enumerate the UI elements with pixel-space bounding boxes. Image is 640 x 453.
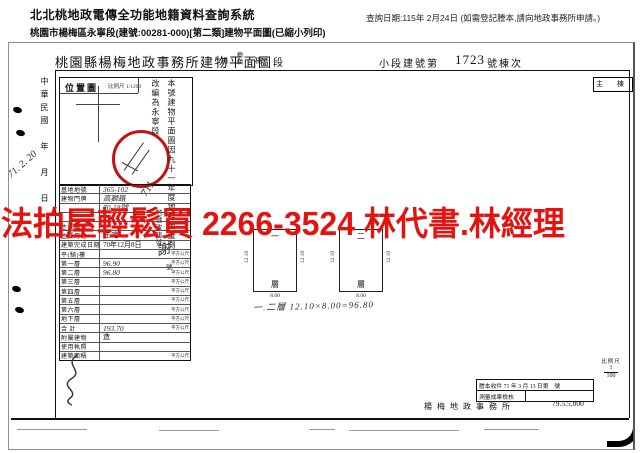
receipt-row-2-label: 測量成果檢核: [477, 391, 526, 401]
row-unit: 平方公尺: [171, 297, 190, 303]
table-row: 附屬建物造: [60, 333, 190, 342]
form-bottom-border: [11, 418, 629, 420]
map-sketch-line: [98, 86, 99, 142]
punch-mark: [15, 129, 25, 137]
row-value-cell: 平方公尺: [100, 251, 190, 257]
row-label: 使用執照: [60, 343, 100, 351]
punch-mark: [12, 106, 22, 114]
row-label: 附屬建物: [60, 333, 100, 341]
lot-label: 小段建號第: [379, 55, 439, 70]
row-label: 第一層: [60, 259, 100, 267]
row-value-cell: 96.80平方公尺: [100, 268, 190, 277]
floor-plan-1-dim-bottom: 8.00: [254, 293, 296, 299]
screenshot-root: 北北桃地政電傳全功能地籍資料查詢系統 查詢日期:115年 2月24日 (如需登記…: [0, 0, 640, 453]
table-row: 第四層平方公尺: [60, 287, 190, 296]
row-label: 第五層: [60, 296, 100, 304]
drawing-scale-denominator: 100: [597, 373, 625, 380]
table-row: 第一層96.90平方公尺: [60, 259, 190, 268]
section-char: 段: [273, 54, 283, 69]
admin-char-2: 梅鎮: [237, 53, 245, 66]
roc-date-label: 中華民國 年 月 日: [39, 77, 50, 282]
row-value: 96.80: [103, 268, 120, 277]
row-label: 合 計: [60, 324, 100, 332]
row-unit: 平方公尺: [171, 260, 190, 266]
renamed-note: 改編為永寧段: [150, 79, 161, 171]
row-value-cell: 平方公尺: [100, 353, 190, 359]
table-row: 第三層平方公尺: [60, 278, 190, 287]
row-value-cell: 96.90平方公尺: [100, 259, 190, 268]
lot-number: 1723: [455, 52, 485, 68]
lot-suffix: 號棟次: [487, 55, 523, 70]
table-row: 合 計193.70平方公尺: [60, 324, 190, 333]
admin-char-1: 楊: [221, 56, 228, 66]
floor-plan-1-dim-left: 12.10: [244, 251, 250, 263]
row-value-cell: 193.70平方公尺: [100, 324, 190, 333]
row-unit: 平方公尺: [171, 251, 190, 257]
admin-char-3: 楊: [255, 56, 262, 66]
table-row: 第六層平方公尺: [60, 305, 190, 314]
row-label: 地下層: [60, 315, 100, 323]
punch-mark: [14, 306, 24, 314]
map-header-rule: [60, 93, 138, 94]
row-unit: 平方公尺: [171, 307, 190, 313]
main-building-box: 主 棟: [593, 77, 633, 92]
row-value-cell: 平方公尺: [100, 288, 190, 294]
scan-corner-artifact: [607, 413, 635, 447]
table-row: 基地地號365-102: [60, 185, 190, 194]
drawing-scale-numerator: 1: [597, 365, 625, 372]
row-unit: 平方公尺: [171, 270, 190, 276]
receipt-row-1: 謄本收件 71 年 3 月 13 日第 號: [477, 380, 593, 391]
office-name: 楊梅地政事務所: [424, 401, 515, 412]
row-value-cell: 365-102: [100, 185, 190, 194]
scanned-document: 桃園縣楊梅地政事務所建物平面圖 楊 梅鎮 楊 段 小段建號第 1723 號棟次 …: [8, 42, 635, 450]
row-value-cell: 平方公尺: [100, 316, 190, 322]
row-unit: 平方公尺: [171, 288, 190, 294]
location-map-scale: 比例尺 1/1200: [108, 82, 141, 90]
row-label: 第四層: [60, 287, 100, 295]
table-row: 地下層平方公尺: [60, 315, 190, 324]
scan-artifact-line: [159, 430, 219, 431]
table-row: 使用執照: [60, 343, 190, 352]
row-unit: 平方公尺: [171, 325, 190, 331]
handwritten-date: 71. 2. 20: [8, 149, 39, 181]
row-value-cell: 平方公尺: [100, 307, 190, 313]
document-subtitle: 桃園市楊梅區永寧段(建號:00281-000)[第二類]建物平面圖(已縮小列印): [30, 25, 326, 39]
scan-artifact-line: [309, 429, 335, 430]
row-value: 造: [103, 333, 110, 342]
row-label: 平(騎)樓: [60, 250, 100, 258]
row-unit: 平方公尺: [171, 279, 190, 285]
floor-plan-1-dim-right: 12.10: [300, 251, 306, 263]
row-value: 96.90: [103, 259, 120, 268]
row-value-cell: 造: [100, 333, 190, 342]
handwritten-scribble: [61, 353, 91, 407]
red-watermark-text: 法拍屋輕鬆買 2266-3524 林代書.林經理: [1, 197, 622, 245]
row-unit: 平方公尺: [171, 353, 190, 359]
row-label: 基地地號: [60, 185, 100, 193]
punch-mark: [11, 285, 21, 293]
table-row: 第五層平方公尺: [60, 296, 190, 305]
floor-plan-2-dim-right: 12.10: [386, 251, 392, 263]
map-header-tick: [138, 78, 139, 93]
row-unit: 平方公尺: [171, 316, 190, 322]
row-value: 365-102: [103, 185, 128, 194]
area-formula: 一.二層 12.10×8.00=96.80: [253, 297, 374, 313]
right-form-border: [629, 70, 630, 418]
print-code: 79.5.5,000: [552, 399, 584, 408]
row-value: 193.70: [103, 324, 124, 333]
floor-plan-1-floor-char: 層: [254, 279, 296, 290]
scan-artifact-line: [17, 429, 87, 430]
table-row: 平(騎)樓平方公尺: [60, 250, 190, 259]
table-row: 第二層96.80平方公尺: [60, 268, 190, 277]
title-underline: [55, 70, 629, 71]
row-label: 第二層: [60, 268, 100, 276]
floor-plan-2-dim-left: 12.10: [330, 251, 336, 263]
drawing-scale: 比例尺 1 100: [597, 357, 625, 380]
row-value-cell: 平方公尺: [100, 297, 190, 303]
row-value-cell: 平方公尺: [100, 279, 190, 285]
row-label: 第六層: [60, 305, 100, 313]
scan-artifact-line: [484, 429, 539, 430]
floor-plan-2-floor-char: 層: [340, 279, 382, 290]
drawing-scale-label: 比例尺: [597, 357, 625, 365]
query-date: 查詢日期:115年 2月24日 (如需登記謄本,請向地政事務所申請。): [366, 12, 600, 24]
system-title: 北北桃地政電傳全功能地籍資料查詢系統: [30, 6, 255, 23]
row-label: 第三層: [60, 278, 100, 286]
map-sketch-line: [76, 104, 120, 105]
scan-artifact-line: [349, 430, 459, 431]
